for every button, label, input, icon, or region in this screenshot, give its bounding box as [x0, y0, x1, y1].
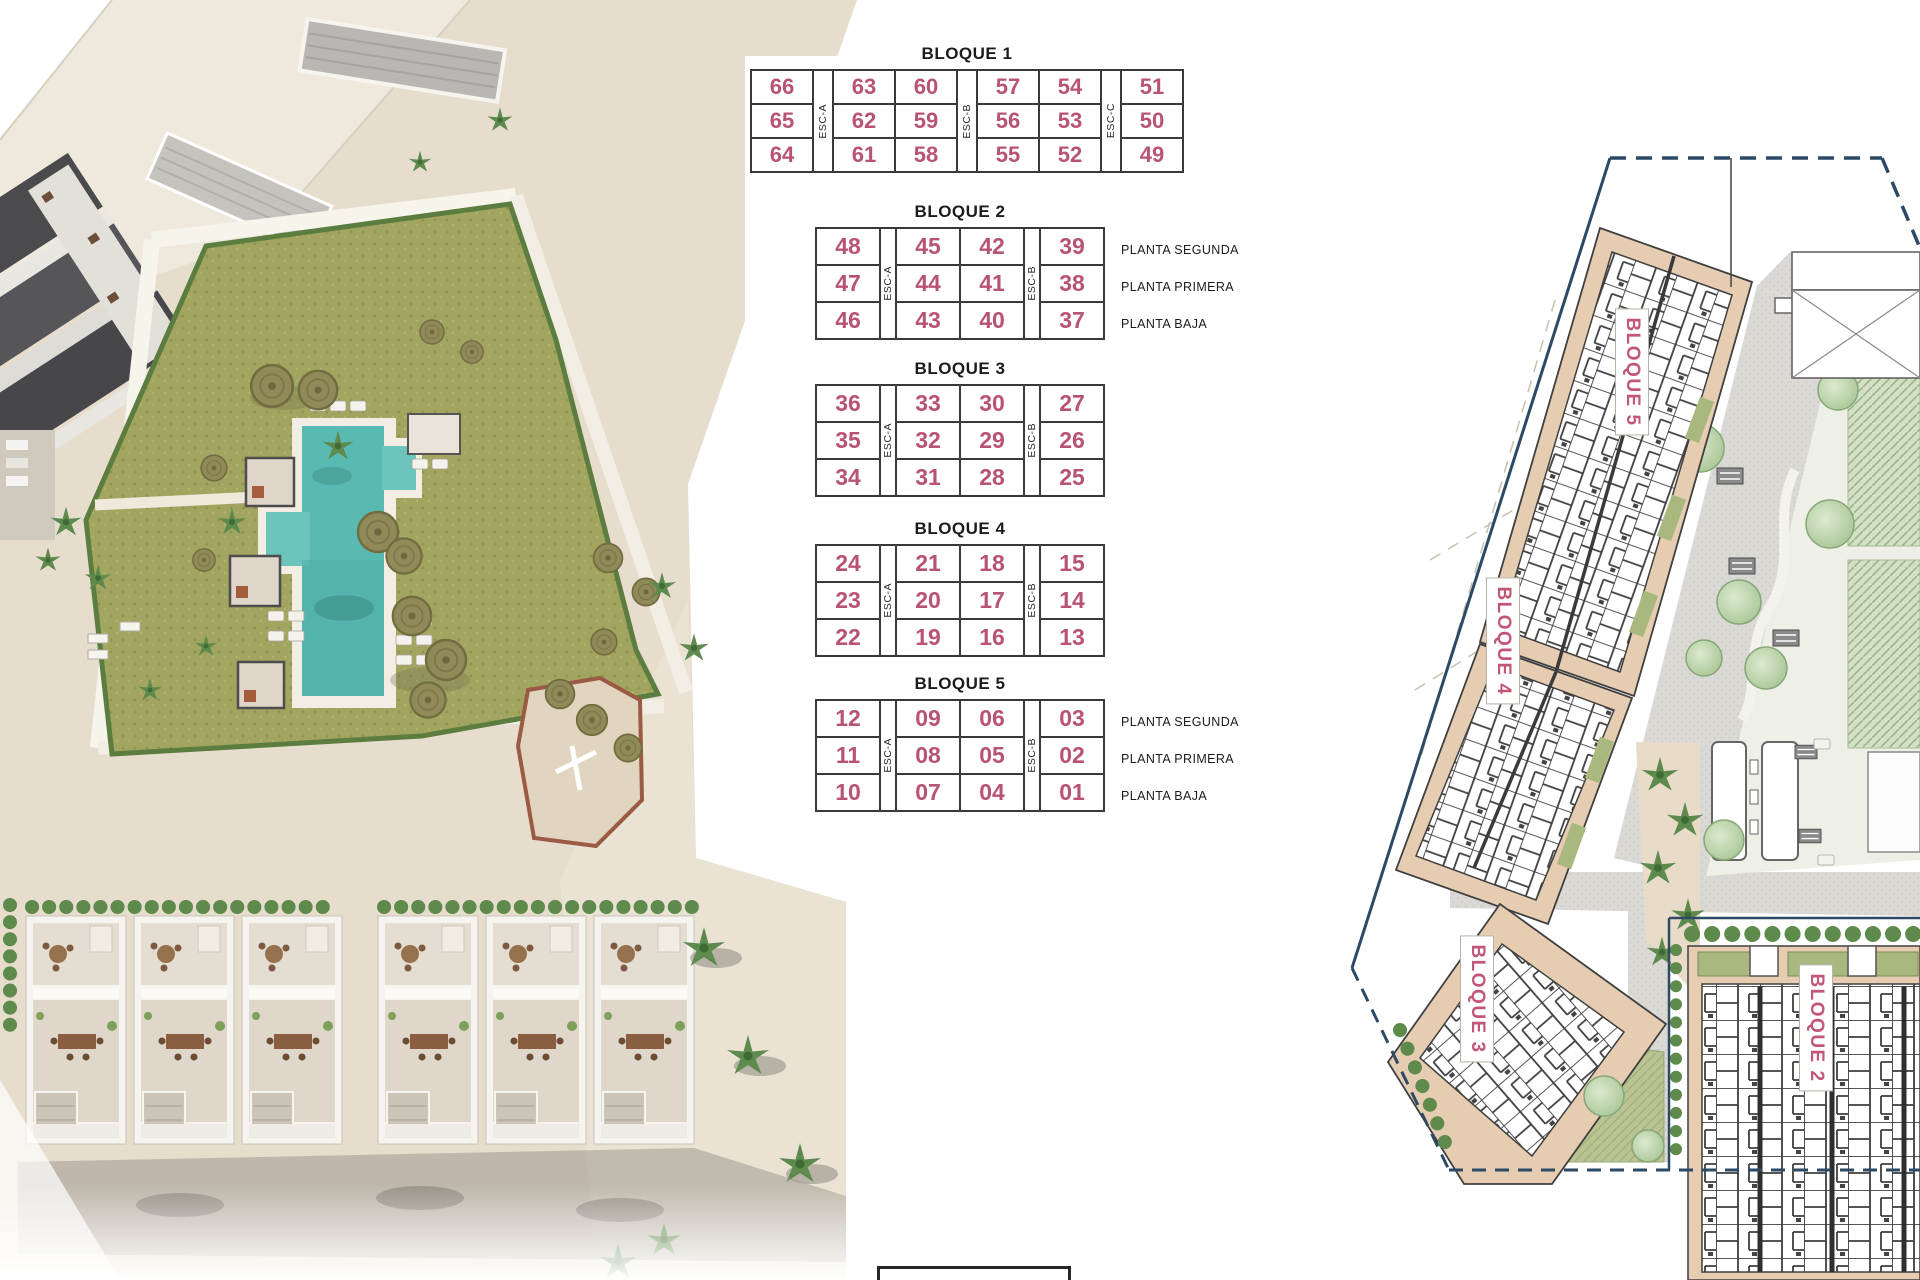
unit-number: 41: [961, 264, 1023, 301]
unit-number: 04: [961, 773, 1023, 810]
stair-column-esc-b: ESC-B: [1023, 701, 1039, 810]
planta-label-bloque-5-2: PLANTA BAJA: [1121, 788, 1207, 804]
table-title-bloque-3: BLOQUE 3: [815, 359, 1105, 379]
unit-number: 32: [897, 421, 959, 458]
stair-label: ESC-B: [1026, 583, 1038, 618]
stair-label: ESC-B: [1026, 738, 1038, 773]
unit-number: 45: [897, 229, 959, 264]
table-title-bloque-5: BLOQUE 5: [815, 674, 1105, 694]
unit-number: 56: [978, 103, 1038, 137]
unit-number: 06: [961, 701, 1023, 736]
unit-number: 07: [897, 773, 959, 810]
unit-grid-bloque-1: 666564ESC-A636261605958ESC-B575655545352…: [750, 69, 1184, 173]
stair-label: ESC-B: [1026, 266, 1038, 301]
unit-number: 63: [834, 71, 894, 103]
stair-label: ESC-A: [817, 104, 829, 139]
unit-number: 47: [817, 264, 879, 301]
unit-number: 65: [752, 103, 812, 137]
unit-number: 49: [1122, 137, 1182, 171]
unit-grid-bloque-3: 363534ESC-A333231302928ESC-B272625: [815, 384, 1105, 497]
unit-number: 53: [1040, 103, 1100, 137]
unit-number: 55: [978, 137, 1038, 171]
unit-table-bloque-4: BLOQUE 4242322ESC-A212019181716ESC-B1514…: [815, 519, 1105, 657]
unit-number: 31: [897, 458, 959, 495]
plan-label-bloque-5: BLOQUE 5: [1615, 308, 1649, 435]
plan-label-bloque-4: BLOQUE 4: [1486, 577, 1520, 704]
brochure-page: BLOQUE 1666564ESC-A636261605958ESC-B5756…: [0, 0, 1920, 1280]
unit-number: 43: [897, 301, 959, 338]
unit-number: 28: [961, 458, 1023, 495]
unit-number: 51: [1122, 71, 1182, 103]
unit-number: 24: [817, 546, 879, 581]
unit-number: 01: [1041, 773, 1103, 810]
unit-table-bloque-5: BLOQUE 5121110ESC-A090807060504ESC-B0302…: [815, 674, 1105, 812]
unit-number: 58: [896, 137, 956, 171]
partial-frame: [877, 1266, 1071, 1280]
unit-number: 64: [752, 137, 812, 171]
unit-number: 57: [978, 71, 1038, 103]
unit-table-bloque-3: BLOQUE 3363534ESC-A333231302928ESC-B2726…: [815, 359, 1105, 497]
stair-column-esc-a: ESC-A: [879, 229, 895, 338]
unit-number: 20: [897, 581, 959, 618]
unit-number: 13: [1041, 618, 1103, 655]
unit-number: 54: [1040, 71, 1100, 103]
unit-number: 10: [817, 773, 879, 810]
unit-table-bloque-2: BLOQUE 2484746ESC-A454443424140ESC-B3938…: [815, 202, 1105, 340]
stair-column-esc-b: ESC-B: [956, 71, 976, 171]
unit-number: 50: [1122, 103, 1182, 137]
unit-number: 02: [1041, 736, 1103, 773]
unit-number: 42: [961, 229, 1023, 264]
unit-number: 03: [1041, 701, 1103, 736]
unit-number: 38: [1041, 264, 1103, 301]
unit-number: 23: [817, 581, 879, 618]
stair-column-esc-b: ESC-B: [1023, 546, 1039, 655]
unit-number: 36: [817, 386, 879, 421]
unit-number: 60: [896, 71, 956, 103]
unit-grid-bloque-5: 121110ESC-A090807060504ESC-B030201: [815, 699, 1105, 812]
stair-label: ESC-B: [1026, 423, 1038, 458]
unit-number: 18: [961, 546, 1023, 581]
unit-number: 12: [817, 701, 879, 736]
unit-number: 35: [817, 421, 879, 458]
stair-label: ESC-A: [882, 266, 894, 301]
unit-number: 33: [897, 386, 959, 421]
unit-grid-bloque-2: 484746ESC-A454443424140ESC-B393837: [815, 227, 1105, 340]
unit-number: 25: [1041, 458, 1103, 495]
planta-label-bloque-5-1: PLANTA PRIMERA: [1121, 751, 1234, 767]
unit-number: 27: [1041, 386, 1103, 421]
unit-number: 44: [897, 264, 959, 301]
table-title-bloque-1: BLOQUE 1: [750, 44, 1184, 64]
unit-table-bloque-1: BLOQUE 1666564ESC-A636261605958ESC-B5756…: [750, 44, 1184, 173]
unit-number: 16: [961, 618, 1023, 655]
unit-number: 26: [1041, 421, 1103, 458]
stair-label: ESC-A: [882, 738, 894, 773]
unit-number: 05: [961, 736, 1023, 773]
planta-label-bloque-2-1: PLANTA PRIMERA: [1121, 279, 1234, 295]
unit-number: 52: [1040, 137, 1100, 171]
unit-number: 29: [961, 421, 1023, 458]
unit-number: 59: [896, 103, 956, 137]
planta-label-bloque-5-0: PLANTA SEGUNDA: [1121, 714, 1239, 730]
unit-number: 66: [752, 71, 812, 103]
unit-number: 19: [897, 618, 959, 655]
unit-key-tables: BLOQUE 1666564ESC-A636261605958ESC-B5756…: [0, 0, 1920, 1280]
unit-number: 61: [834, 137, 894, 171]
planta-label-bloque-2-2: PLANTA BAJA: [1121, 316, 1207, 332]
unit-number: 37: [1041, 301, 1103, 338]
unit-number: 39: [1041, 229, 1103, 264]
stair-column-esc-a: ESC-A: [879, 546, 895, 655]
stair-label: ESC-B: [961, 104, 973, 139]
stair-column-esc-a: ESC-A: [879, 386, 895, 495]
unit-number: 40: [961, 301, 1023, 338]
unit-number: 15: [1041, 546, 1103, 581]
unit-number: 09: [897, 701, 959, 736]
unit-grid-bloque-4: 242322ESC-A212019181716ESC-B151413: [815, 544, 1105, 657]
table-title-bloque-2: BLOQUE 2: [815, 202, 1105, 222]
stair-column-esc-b: ESC-B: [1023, 229, 1039, 338]
unit-number: 11: [817, 736, 879, 773]
stair-label: ESC-A: [882, 583, 894, 618]
unit-number: 46: [817, 301, 879, 338]
unit-number: 48: [817, 229, 879, 264]
unit-number: 34: [817, 458, 879, 495]
unit-number: 21: [897, 546, 959, 581]
unit-number: 30: [961, 386, 1023, 421]
unit-number: 17: [961, 581, 1023, 618]
stair-column-esc-c: ESC-C: [1100, 71, 1120, 171]
unit-number: 62: [834, 103, 894, 137]
plan-label-bloque-3: BLOQUE 3: [1460, 935, 1494, 1062]
stair-column-esc-a: ESC-A: [879, 701, 895, 810]
plan-label-bloque-2: BLOQUE 2: [1799, 964, 1833, 1091]
stair-column-esc-a: ESC-A: [812, 71, 832, 171]
stair-label: ESC-A: [882, 423, 894, 458]
planta-label-bloque-2-0: PLANTA SEGUNDA: [1121, 242, 1239, 258]
unit-number: 08: [897, 736, 959, 773]
stair-label: ESC-C: [1105, 103, 1117, 138]
table-title-bloque-4: BLOQUE 4: [815, 519, 1105, 539]
unit-number: 14: [1041, 581, 1103, 618]
unit-number: 22: [817, 618, 879, 655]
stair-column-esc-b: ESC-B: [1023, 386, 1039, 495]
